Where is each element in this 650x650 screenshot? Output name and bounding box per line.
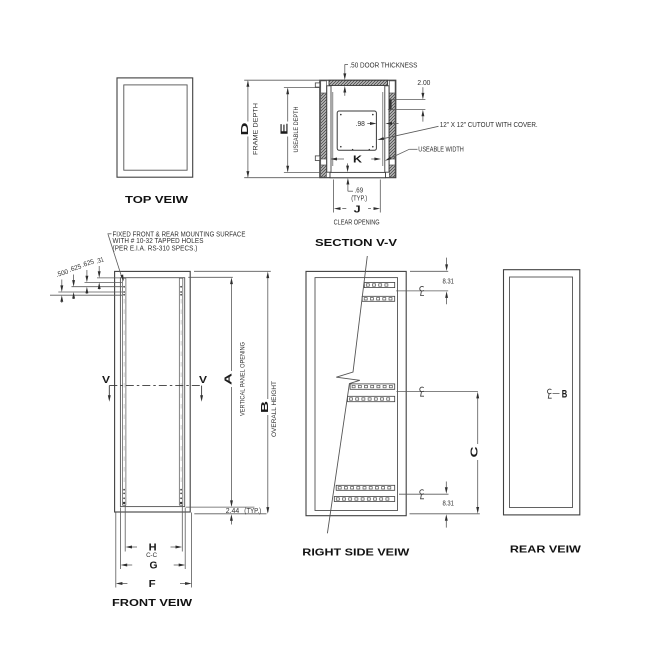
svg-text:VERTICAL PANEL OPENING: VERTICAL PANEL OPENING xyxy=(240,342,247,416)
svg-text:A: A xyxy=(223,372,235,385)
svg-text:F: F xyxy=(149,579,156,590)
svg-text:SECTION V-V: SECTION V-V xyxy=(315,237,397,249)
svg-text:(TYP.): (TYP.) xyxy=(351,195,367,202)
svg-text:2.44: 2.44 xyxy=(226,508,240,515)
svg-text:E: E xyxy=(279,123,291,135)
svg-text:(PER E.I.A. RS-310 SPECS.): (PER E.I.A. RS-310 SPECS.) xyxy=(113,243,198,252)
svg-text:8.31: 8.31 xyxy=(442,498,454,507)
svg-text:(TYP.): (TYP.) xyxy=(244,508,261,515)
svg-text:CLEAR OPENING: CLEAR OPENING xyxy=(334,218,380,227)
svg-text:OVERALL HEIGHT: OVERALL HEIGHT xyxy=(271,381,278,437)
svg-text:B: B xyxy=(562,389,568,401)
svg-text:RIGHT SIDE VEIW: RIGHT SIDE VEIW xyxy=(302,547,409,559)
svg-text:FRAME DEPTH: FRAME DEPTH xyxy=(253,103,260,155)
svg-text:D: D xyxy=(239,122,251,136)
svg-text:REAR VEIW: REAR VEIW xyxy=(510,544,581,556)
svg-text:12" X 12" CUTOUT WITH COVER.: 12" X 12" CUTOUT WITH COVER. xyxy=(440,120,538,129)
svg-text:C: C xyxy=(469,446,481,458)
svg-text:.50 DOOR THICKNESS: .50 DOOR THICKNESS xyxy=(349,60,417,69)
svg-text:.69: .69 xyxy=(355,185,364,194)
svg-text:G: G xyxy=(150,560,158,571)
svg-text:TOP VEIW: TOP VEIW xyxy=(125,195,189,206)
svg-text:.98: .98 xyxy=(356,119,365,128)
svg-text:V: V xyxy=(199,375,207,386)
svg-text:FRONT VEIW: FRONT VEIW xyxy=(112,597,192,609)
svg-text:J: J xyxy=(354,203,361,215)
svg-text:8.31: 8.31 xyxy=(442,276,454,285)
svg-text:C-C: C-C xyxy=(146,552,158,559)
svg-text:USEABLE DEPTH: USEABLE DEPTH xyxy=(293,106,300,152)
svg-text:V: V xyxy=(102,375,110,386)
svg-text:USEABLE WIDTH: USEABLE WIDTH xyxy=(418,145,464,154)
svg-text:B: B xyxy=(259,400,271,413)
svg-text:K: K xyxy=(353,154,362,166)
svg-text:2.00: 2.00 xyxy=(417,78,430,87)
